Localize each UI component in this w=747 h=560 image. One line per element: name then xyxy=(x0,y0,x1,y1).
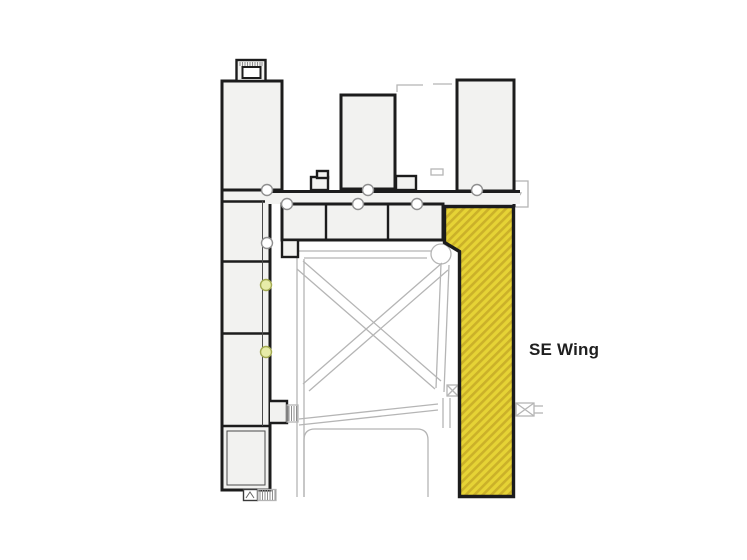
west-wing-connector xyxy=(270,401,287,423)
column-marker xyxy=(472,185,483,196)
corner-step xyxy=(282,240,298,257)
column-marker-accent xyxy=(261,280,272,291)
column-marker xyxy=(353,199,364,210)
floor-plan-page: SE Wing xyxy=(0,0,747,560)
west-wing-top-section xyxy=(222,81,282,190)
column-marker-accent xyxy=(261,347,272,358)
courtyard-walkways xyxy=(297,244,458,497)
column-marker xyxy=(262,185,273,196)
column-marker xyxy=(282,199,293,210)
floor-plan-drawing xyxy=(0,0,747,560)
column-marker xyxy=(412,199,423,210)
se-wing-highlight xyxy=(445,207,514,497)
west-bridge-hatch xyxy=(287,405,298,422)
north-middle-building xyxy=(311,95,395,190)
column-marker xyxy=(262,238,273,249)
column-marker xyxy=(363,185,374,196)
north-stair-tower xyxy=(237,60,266,81)
small-annex-outline xyxy=(431,169,443,175)
north-east-step xyxy=(396,176,416,190)
canopy-line-left xyxy=(397,85,423,92)
se-bridge-connector xyxy=(516,403,543,416)
north-east-building xyxy=(396,80,514,207)
se-wing-label: SE Wing xyxy=(529,340,599,360)
south-row-rooms xyxy=(282,204,443,257)
